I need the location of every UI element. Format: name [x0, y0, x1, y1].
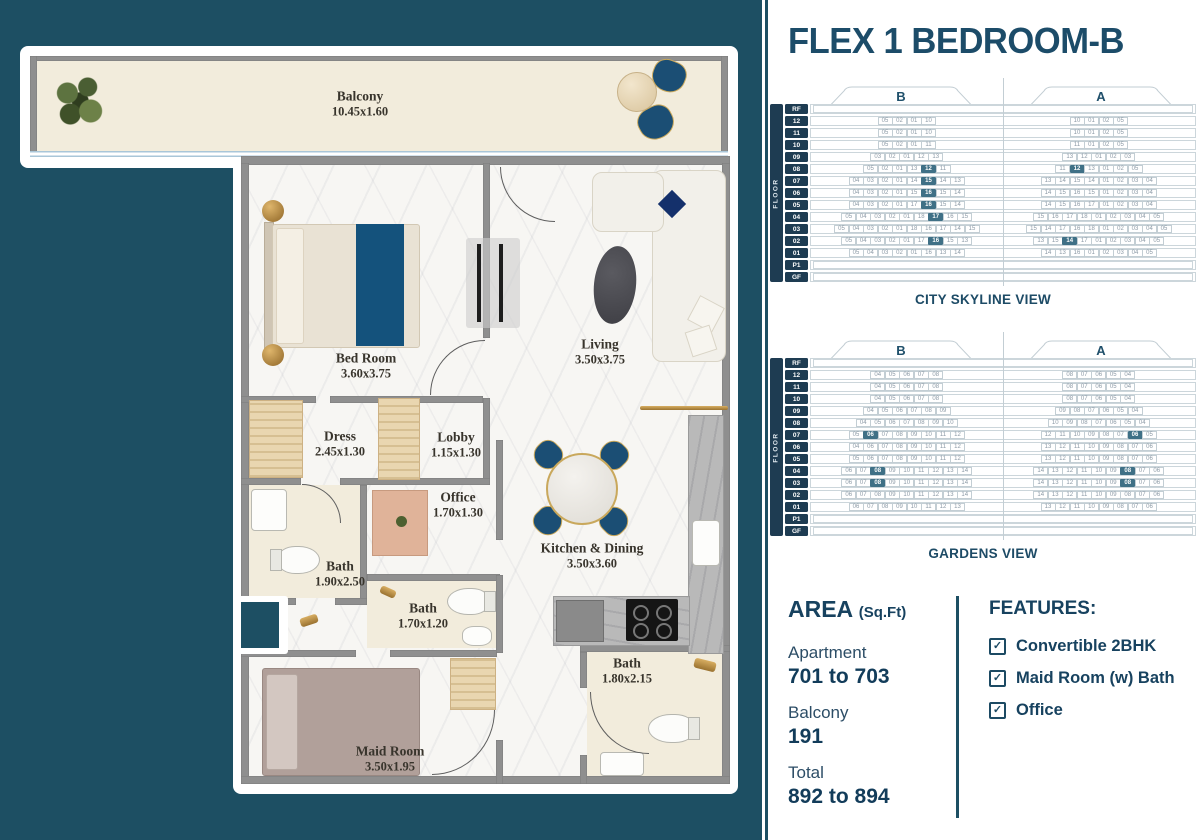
unit-cell: 02 — [1113, 225, 1128, 233]
feature-item: ✓ Office — [989, 701, 1175, 720]
floor-chip: RF — [785, 104, 808, 114]
wardrobe-icon — [466, 238, 520, 328]
unit-cell-highlighted: 12 — [1070, 165, 1085, 173]
unit-cell: 12 — [950, 443, 965, 451]
unit-cell: 05 — [1142, 431, 1157, 439]
unit-cell: 13 — [1041, 443, 1056, 451]
unit-cell: 01 — [1084, 249, 1099, 257]
unit-cell: 11 — [1070, 503, 1085, 511]
unit-cell: 05 — [849, 455, 864, 463]
unit-cell: 10 — [1070, 431, 1085, 439]
unit-cell: 12 — [1055, 455, 1070, 463]
unit-cell: 04 — [870, 383, 885, 391]
unit-cell: 13 — [957, 237, 972, 245]
unit-cell: 05 — [1120, 419, 1135, 427]
unit-cell: 01 — [1099, 189, 1114, 197]
unit-cell: 03 — [863, 189, 878, 197]
unit-cell: 05 — [1157, 225, 1172, 233]
unit-cell: 07 — [914, 371, 929, 379]
unit-cell: 02 — [878, 189, 893, 197]
unit-cell: 05 — [841, 237, 856, 245]
unit-cell: 04 — [1135, 213, 1150, 221]
unit-cell: 08 — [1070, 407, 1085, 415]
unit-cell: 09 — [1084, 431, 1099, 439]
area-item-apartment: Apartment 701 to 703 — [788, 643, 956, 689]
unit-cell: 02 — [1099, 129, 1114, 137]
unit-cell: 02 — [1099, 141, 1114, 149]
unit-cell-highlighted: 14 — [1062, 237, 1077, 245]
unit-cell: 03 — [870, 237, 885, 245]
unit-cell: 05 — [885, 371, 900, 379]
unit-cell: 04 — [849, 189, 864, 197]
unit-cell: 06 — [899, 395, 914, 403]
unit-cell: 05 — [878, 117, 893, 125]
floor-chip: 08 — [785, 418, 808, 428]
unit-cell: 11 — [936, 443, 951, 451]
features-heading: FEATURES: — [989, 598, 1175, 620]
floor-chip: 03 — [785, 478, 808, 488]
sink-icon — [600, 752, 644, 776]
area-heading: AREA (Sq.Ft) — [788, 596, 956, 623]
unit-cell: 09 — [1062, 419, 1077, 427]
unit-cell: 15 — [1055, 189, 1070, 197]
unit-cell: 14 — [1041, 189, 1056, 197]
sofa-chaise-icon — [592, 172, 664, 232]
unit-cell: 10 — [921, 129, 936, 137]
office-plant-icon — [396, 516, 407, 527]
unit-cell: 14 — [957, 479, 972, 487]
unit-cell: 02 — [1099, 117, 1114, 125]
unit-cell: 12 — [1055, 443, 1070, 451]
unit-cell: 07 — [878, 431, 893, 439]
unit-cell: 05 — [885, 395, 900, 403]
unit-cell: 07 — [1128, 443, 1143, 451]
checkbox-icon: ✓ — [989, 670, 1006, 687]
unit-cell: 02 — [892, 141, 907, 149]
wall — [367, 574, 500, 581]
unit-rows: 0502011010010205050201101001020505020111… — [810, 104, 1196, 284]
unit-cell: 04 — [856, 237, 871, 245]
unit-cell: 13 — [936, 249, 951, 257]
unit-cell: 17 — [1084, 201, 1099, 209]
floor-chip: 04 — [785, 466, 808, 476]
unit-cell: 13 — [1033, 237, 1048, 245]
unit-cell: 15 — [1033, 213, 1048, 221]
unit-cell: 10 — [1084, 455, 1099, 463]
unit-cell: 04 — [870, 371, 885, 379]
unit-cell: 18 — [914, 213, 929, 221]
unit-cell: 01 — [899, 153, 914, 161]
unit-cell: 02 — [878, 177, 893, 185]
wall — [241, 163, 249, 784]
unit-cell: 06 — [1091, 383, 1106, 391]
unit-cell: 08 — [1099, 431, 1114, 439]
unit-cell: 07 — [878, 443, 893, 451]
unit-cell: 10 — [921, 117, 936, 125]
unit-cell: 01 — [892, 189, 907, 197]
unit-cell-highlighted: 06 — [1128, 431, 1143, 439]
unit-cell: 12 — [1062, 491, 1077, 499]
unit-cell: 09 — [1099, 455, 1114, 463]
unit-cell: 02 — [892, 129, 907, 137]
unit-cell: 11 — [914, 491, 929, 499]
unit-cell: 05 — [1113, 129, 1128, 137]
unit-cell: 08 — [928, 395, 943, 403]
unit-cell: 06 — [885, 419, 900, 427]
unit-cell: 13 — [907, 165, 922, 173]
room-label-bath1: Bath1.90x2.50 — [315, 558, 365, 589]
balcony-wall-left — [30, 56, 37, 152]
unit-cell: 08 — [1120, 491, 1135, 499]
unit-cell: 02 — [1106, 237, 1121, 245]
unit-cell-highlighted: 15 — [921, 177, 936, 185]
unit-cell: 04 — [1142, 225, 1157, 233]
unit-cell: 09 — [1106, 491, 1121, 499]
feature-item: ✓ Maid Room (w) Bath — [989, 669, 1175, 688]
floor-chip: 09 — [785, 406, 808, 416]
unit-cell: 05 — [1142, 249, 1157, 257]
unit-cell: 12 — [1077, 153, 1092, 161]
unit-cell: 10 — [1048, 419, 1063, 427]
unit-cell: 12 — [928, 479, 943, 487]
unit-cell: 06 — [899, 383, 914, 391]
unit-cell: 04 — [870, 395, 885, 403]
unit-cell: 10 — [943, 419, 958, 427]
unit-cell: 01 — [907, 249, 922, 257]
unit-cell: 01 — [892, 225, 907, 233]
toilet-tank-icon — [484, 591, 496, 612]
unit-cell: 11 — [1077, 479, 1092, 487]
unit-cell: 06 — [1142, 503, 1157, 511]
unit-cell-highlighted: 16 — [921, 189, 936, 197]
unit-cell: 07 — [1084, 407, 1099, 415]
unit-cell: 10 — [1084, 503, 1099, 511]
unit-cell: 12 — [928, 491, 943, 499]
unit-cell: 01 — [892, 177, 907, 185]
floor-chips: RF121110090807060504030201P1GF — [785, 358, 808, 538]
unit-cell: 11 — [914, 467, 929, 475]
unit-cell: 02 — [892, 249, 907, 257]
unit-cell: 05 — [834, 225, 849, 233]
unit-cell: 12 — [1062, 467, 1077, 475]
unit-cell: 07 — [856, 491, 871, 499]
unit-cell: 15 — [936, 189, 951, 197]
unit-cell: 02 — [878, 225, 893, 233]
unit-cell: 09 — [907, 431, 922, 439]
closet-icon — [450, 658, 496, 710]
floor-chip: 05 — [785, 200, 808, 210]
unit-cell: 14 — [1033, 479, 1048, 487]
unit-cell: 14 — [907, 177, 922, 185]
unit-cell: 05 — [885, 383, 900, 391]
unit-cell: 08 — [892, 455, 907, 463]
unit-cell: 09 — [1099, 503, 1114, 511]
unit-cell: 07 — [1077, 383, 1092, 391]
unit-cell: 10 — [921, 431, 936, 439]
unit-cell: 02 — [892, 117, 907, 125]
unit-cell: 13 — [1041, 503, 1056, 511]
unit-cell: 09 — [1055, 407, 1070, 415]
unit-cell: 11 — [921, 141, 936, 149]
unit-cell: 12 — [950, 431, 965, 439]
wardrobe-rail-icon — [499, 244, 503, 322]
unit-cell: 06 — [1149, 479, 1164, 487]
unit-cell: 09 — [928, 419, 943, 427]
unit-cell: 06 — [841, 467, 856, 475]
unit-cell: 12 — [936, 503, 951, 511]
unit-cell: 04 — [849, 201, 864, 209]
floor-chip: GF — [785, 272, 808, 282]
unit-cell: 02 — [1113, 165, 1128, 173]
unit-cell: 13 — [1041, 177, 1056, 185]
unit-cell: 11 — [1070, 443, 1085, 451]
unit-cell: 06 — [1099, 407, 1114, 415]
unit-cell: 08 — [1113, 503, 1128, 511]
unit-cell: 02 — [878, 165, 893, 173]
unit-cell: 01 — [907, 141, 922, 149]
unit-cell: 04 — [1120, 383, 1135, 391]
unit-cell: 01 — [1084, 129, 1099, 137]
floor-chip: 12 — [785, 116, 808, 126]
wall — [580, 755, 587, 784]
area-item-total: Total 892 to 894 — [788, 763, 956, 809]
room-label-maid: Maid Room3.50x1.95 — [356, 743, 425, 774]
unit-cell: 06 — [863, 455, 878, 463]
unit-cell: 02 — [885, 213, 900, 221]
unit-cell: 07 — [1135, 491, 1150, 499]
unit-cell: 10 — [907, 503, 922, 511]
unit-cell: 15 — [957, 213, 972, 221]
unit-cell: 14 — [1041, 201, 1056, 209]
unit-cell: 07 — [1135, 479, 1150, 487]
unit-cell: 13 — [1055, 249, 1070, 257]
unit-cell: 01 — [907, 117, 922, 125]
unit-cell: 05 — [1113, 407, 1128, 415]
unit-cell: 15 — [907, 189, 922, 197]
floor-chip: 11 — [785, 128, 808, 138]
unit-cell: 08 — [921, 407, 936, 415]
unit-cell: 08 — [892, 443, 907, 451]
floor-chip: 02 — [785, 490, 808, 500]
area-features-divider — [956, 596, 959, 818]
wall — [483, 398, 490, 482]
unit-cell: 11 — [936, 165, 951, 173]
floor-axis: FLOOR — [770, 358, 783, 536]
unit-cell: 16 — [921, 249, 936, 257]
unit-cell: 11 — [914, 479, 929, 487]
closet-icon — [378, 398, 420, 480]
unit-cell: 09 — [936, 407, 951, 415]
wall — [496, 740, 503, 784]
unit-cell: 02 — [1113, 201, 1128, 209]
unit-cell: 16 — [921, 225, 936, 233]
unit-cell: 12 — [1055, 503, 1070, 511]
unit-cell: 16 — [1070, 189, 1085, 197]
unit-cell: 11 — [936, 431, 951, 439]
unit-cell: 18 — [907, 225, 922, 233]
unit-cell: 06 — [1149, 467, 1164, 475]
floor-chip: 01 — [785, 502, 808, 512]
unit-cell: 01 — [1091, 237, 1106, 245]
floor-chips: RF121110090807060504030201P1GF — [785, 104, 808, 284]
unit-cell: 11 — [1055, 165, 1070, 173]
unit-cell: 10 — [1091, 491, 1106, 499]
unit-cell: 08 — [892, 431, 907, 439]
unit-cell: 07 — [1077, 371, 1092, 379]
toilet-icon — [447, 588, 489, 615]
unit-cell: 02 — [1106, 213, 1121, 221]
wing-divider — [1003, 78, 1004, 286]
unit-cell: 07 — [856, 467, 871, 475]
unit-cell: 16 — [1070, 249, 1085, 257]
unit-cell: 14 — [1041, 249, 1056, 257]
toilet-tank-icon — [688, 717, 700, 740]
unit-cell: 08 — [878, 503, 893, 511]
unit-cell: 08 — [928, 383, 943, 391]
unit-cell: 08 — [1062, 371, 1077, 379]
unit-cell: 14 — [950, 189, 965, 197]
unit-cell: 04 — [1120, 371, 1135, 379]
unit-cell: 15 — [965, 225, 980, 233]
wing-label-a: A — [1016, 89, 1186, 104]
unit-cell: 04 — [856, 213, 871, 221]
floor-chip: 02 — [785, 236, 808, 246]
unit-cell: 13 — [943, 491, 958, 499]
wardrobe-rail-icon — [477, 244, 481, 322]
unit-cell: 14 — [950, 201, 965, 209]
unit-cell: 07 — [914, 395, 929, 403]
wing-label-b: B — [816, 89, 986, 104]
wall — [496, 575, 503, 653]
unit-cell: 14 — [950, 225, 965, 233]
unit-cell: 05 — [849, 431, 864, 439]
unit-cell: 15 — [1084, 189, 1099, 197]
maid-bed-pillow-icon — [266, 674, 298, 770]
unit-cell: 11 — [936, 455, 951, 463]
unit-cell: 07 — [1077, 395, 1092, 403]
unit-cell: 02 — [1113, 189, 1128, 197]
unit-cell: 13 — [950, 177, 965, 185]
wall — [241, 478, 301, 485]
unit-cell: 01 — [1084, 117, 1099, 125]
unit-cell: 09 — [885, 479, 900, 487]
unit-cell: 05 — [1106, 371, 1121, 379]
room-label-balcony: Balcony10.45x1.60 — [332, 88, 388, 119]
unit-cell: 14 — [1084, 177, 1099, 185]
unit-cell: 03 — [1128, 189, 1143, 197]
floor-chip: 07 — [785, 176, 808, 186]
floor-chip: GF — [785, 526, 808, 536]
washing-machine-icon — [251, 489, 287, 531]
unit-cell: 11 — [1077, 491, 1092, 499]
unit-cell: 04 — [863, 407, 878, 415]
unit-cell: 03 — [1120, 237, 1135, 245]
unit-cell: 06 — [1091, 395, 1106, 403]
wall — [390, 650, 497, 657]
unit-cell: 02 — [1113, 177, 1128, 185]
unit-cell: 13 — [1084, 165, 1099, 173]
unit-cell: 02 — [885, 153, 900, 161]
unit-cell: 03 — [1128, 177, 1143, 185]
unit-cell: 05 — [1149, 213, 1164, 221]
wing-divider — [1003, 332, 1004, 540]
unit-cell: 08 — [928, 371, 943, 379]
unit-cell: 04 — [1142, 177, 1157, 185]
unit-rows: 0405060708080706050404050607080807060504… — [810, 358, 1196, 538]
unit-cell: 17 — [1062, 213, 1077, 221]
unit-cell: 06 — [1091, 371, 1106, 379]
floor-chip: 09 — [785, 152, 808, 162]
unit-cell: 07 — [1128, 503, 1143, 511]
unit-cell: 10 — [921, 455, 936, 463]
unit-cell-highlighted: 16 — [928, 237, 943, 245]
balcony-wall-right — [721, 56, 728, 152]
unit-cell: 08 — [1113, 455, 1128, 463]
room-label-bedroom: Bed Room3.60x3.75 — [336, 350, 396, 381]
unit-cell: 12 — [950, 455, 965, 463]
unit-cell: 03 — [863, 201, 878, 209]
unit-cell: 05 — [1106, 395, 1121, 403]
unit-cell: 01 — [1084, 141, 1099, 149]
unit-cell: 13 — [928, 153, 943, 161]
unit-cell: 16 — [1048, 213, 1063, 221]
unit-cell: 06 — [892, 407, 907, 415]
unit-cell: 08 — [870, 491, 885, 499]
floor-chip: 12 — [785, 370, 808, 380]
unit-cell: 14 — [936, 177, 951, 185]
unit-cell: 03 — [870, 153, 885, 161]
unit-cell: 17 — [1077, 237, 1092, 245]
unit-cell: 04 — [1120, 395, 1135, 403]
room-label-living: Living3.50x3.75 — [575, 336, 625, 367]
unit-cell: 05 — [1106, 383, 1121, 391]
unit-cell: 07 — [1135, 467, 1150, 475]
unit-cell: 01 — [1099, 225, 1114, 233]
unit-cell: 12 — [914, 153, 929, 161]
area-item-balcony: Balcony 191 — [788, 703, 956, 749]
unit-cell: 09 — [885, 491, 900, 499]
bed-runner-icon — [356, 224, 404, 346]
unit-cell: 05 — [1113, 141, 1128, 149]
unit-cell: 15 — [943, 237, 958, 245]
unit-cell: 06 — [863, 443, 878, 451]
unit-cell-highlighted: 08 — [1120, 467, 1135, 475]
wall-notch — [241, 602, 279, 648]
unit-cell-highlighted: 08 — [870, 467, 885, 475]
unit-cell: 07 — [914, 383, 929, 391]
unit-cell-highlighted: 17 — [928, 213, 943, 221]
unit-cell: 09 — [907, 443, 922, 451]
console-table-icon — [640, 406, 728, 410]
unit-cell: 12 — [928, 467, 943, 475]
wall — [580, 652, 587, 688]
floor-chip: P1 — [785, 260, 808, 270]
wing-label-a: A — [1016, 343, 1186, 358]
wall — [496, 440, 503, 540]
unit-cell: 10 — [899, 479, 914, 487]
unit-cell: 08 — [1062, 383, 1077, 391]
floor-chip: 10 — [785, 140, 808, 150]
unit-cell: 02 — [878, 201, 893, 209]
unit-cell: 10 — [1084, 443, 1099, 451]
unit-cell: 09 — [885, 467, 900, 475]
unit-cell: 07 — [1113, 431, 1128, 439]
unit-cell: 08 — [914, 419, 929, 427]
unit-cell: 04 — [849, 443, 864, 451]
unit-cell: 04 — [863, 249, 878, 257]
unit-cell: 14 — [1033, 467, 1048, 475]
unit-cell: 13 — [1041, 455, 1056, 463]
